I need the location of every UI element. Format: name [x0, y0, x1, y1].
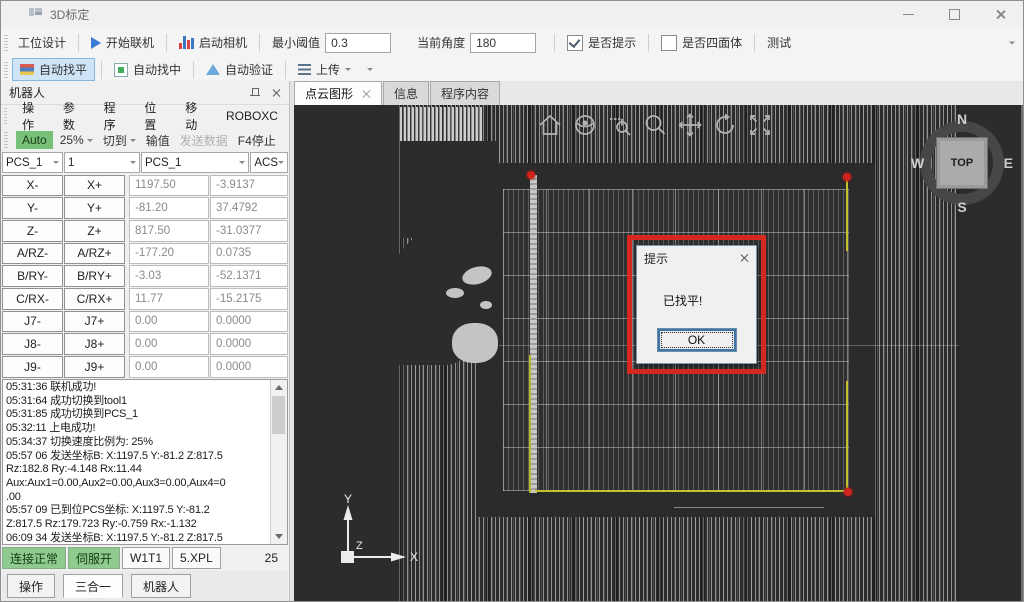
- close-icon: [995, 9, 1006, 20]
- panel-tab[interactable]: 操作: [7, 574, 55, 598]
- jog-plus-button[interactable]: J9+: [64, 356, 125, 378]
- servo-status-badge: 伺服开: [68, 547, 120, 569]
- maximize-button[interactable]: [931, 1, 977, 27]
- jog-minus-button[interactable]: J9-: [2, 356, 63, 378]
- compass-east[interactable]: E: [1004, 155, 1013, 171]
- jog-offset-value: 0.0000: [210, 311, 288, 333]
- jog-position-value: 817.50: [129, 220, 209, 242]
- jog-row: J8- J8+ 0.00 0.0000: [2, 333, 288, 356]
- panel-close-icon[interactable]: [271, 88, 281, 98]
- minimize-button[interactable]: [885, 1, 931, 27]
- jog-plus-button[interactable]: B/RY+: [64, 265, 125, 287]
- log-panel: 05:31:36 联机成功! 05:31:64 成功切换到tool1 05:31…: [2, 379, 288, 545]
- jog-minus-button[interactable]: Z-: [2, 220, 63, 242]
- log-scrollbar[interactable]: [270, 380, 287, 544]
- dropdown-arrow-icon: [130, 161, 136, 164]
- dropdown-arrow-icon: [239, 161, 245, 164]
- jog-position-value: 0.00: [129, 311, 209, 333]
- jog-position-value: -177.20: [129, 243, 209, 265]
- edge-line-yellow: [529, 355, 531, 493]
- tab-program-content[interactable]: 程序内容: [430, 81, 500, 105]
- toolbar-grip: [4, 108, 7, 124]
- send-data-button: 发送数据: [177, 130, 231, 151]
- coordinate-combo[interactable]: 1: [64, 152, 140, 173]
- dialog-message: 已找平!: [663, 292, 702, 309]
- tool-indicator: W1T1: [122, 547, 170, 569]
- point-cloud-viewport[interactable]: N E S W TOP Y X Z: [294, 105, 1023, 601]
- app-window: 3D标定 工位设计 开始联机 启动相机 最小阈值 0.3 当前角度 180: [0, 0, 1024, 602]
- zoom-icon[interactable]: [642, 112, 668, 138]
- jog-row: Y- Y+ -81.20 37.4792: [2, 197, 288, 220]
- current-angle-group: 当前角度 180: [411, 33, 542, 53]
- jog-minus-button[interactable]: A/RZ-: [2, 243, 63, 265]
- current-angle-input[interactable]: 180: [470, 33, 536, 53]
- jog-offset-value: -3.9137: [210, 175, 288, 197]
- corner-marker: [844, 488, 852, 496]
- log-line: Z:817.5 Rz:179.723 Ry:-0.759 Rx:-1.132: [6, 518, 270, 532]
- pan-icon[interactable]: [677, 112, 703, 138]
- checkbox-unchecked-icon: [661, 35, 677, 51]
- jog-table: X- X+ 1197.50 -3.9137 Y- Y+ -81.20 37.47…: [2, 174, 288, 378]
- speed-indicator: 25: [265, 551, 288, 565]
- jog-row: B/RY- B/RY+ -3.03 -52.1371: [2, 265, 288, 288]
- compass-west[interactable]: W: [911, 155, 924, 171]
- play-icon: [91, 37, 101, 49]
- min-threshold-group: 最小阈值 0.3: [266, 33, 397, 53]
- coordinate-selectors: PCS_1 1 PCS_1 ACS: [2, 152, 288, 173]
- main-area: 点云图形 信息 程序内容: [294, 81, 1023, 601]
- edge-line-yellow: [846, 179, 848, 251]
- dialog-close-icon[interactable]: [739, 253, 749, 263]
- menu-item[interactable]: ROBOXC: [215, 109, 289, 123]
- prompt-dialog: 提示 已找平! OK: [636, 245, 757, 364]
- dialog-title: 提示: [644, 250, 739, 267]
- show-prompt-checkbox[interactable]: 是否提示: [561, 34, 642, 51]
- toolbar-overflow-icon[interactable]: [1009, 41, 1015, 44]
- auto-verify-button[interactable]: 自动验证: [200, 61, 279, 78]
- scan-edge-pillar: [530, 175, 537, 493]
- edge-line-yellow: [535, 490, 847, 492]
- toolbar-grip: [4, 62, 8, 78]
- jog-minus-button[interactable]: X-: [2, 175, 63, 197]
- log-line: Aux:Aux1=0.00,Aux2=0.00,Aux3=0.00,Aux4=0: [6, 477, 270, 491]
- log-line: 05:32:11 上电成功!: [6, 422, 270, 436]
- min-threshold-input[interactable]: 0.3: [325, 33, 391, 53]
- toolbar-grip: [4, 35, 8, 51]
- robot-action-bar: Auto 25% 切到 输值 发送数据 F4停止: [1, 128, 289, 152]
- test-button[interactable]: 测试: [761, 34, 797, 51]
- jog-offset-value: 0.0000: [210, 333, 288, 355]
- maximize-icon: [949, 9, 960, 20]
- jog-row: Z- Z+ 817.50 -31.0377: [2, 219, 288, 242]
- jog-position-value: 1197.50: [129, 175, 209, 197]
- dialog-ok-button[interactable]: OK: [657, 328, 737, 352]
- robot-menu: 操作参数程序位置移动ROBOXC: [1, 104, 289, 128]
- coordinate-combo[interactable]: PCS_1: [141, 152, 249, 173]
- panel-tab[interactable]: 三合一: [63, 574, 123, 598]
- rotate-icon[interactable]: [712, 112, 738, 138]
- jog-plus-button[interactable]: A/RZ+: [64, 243, 125, 265]
- jog-row: X- X+ 1197.50 -3.9137: [2, 174, 288, 197]
- jog-row: J7- J7+ 0.00 0.0000: [2, 310, 288, 333]
- log-line: 05:57 06 发送坐标B: X:1197.5 Y:-81.2 Z:817.5: [6, 450, 270, 464]
- orbit-icon[interactable]: [572, 112, 598, 138]
- jog-position-value: -81.20: [129, 197, 209, 219]
- coordinate-combo[interactable]: ACS: [250, 152, 288, 173]
- connection-status-badge: 连接正常: [2, 547, 66, 569]
- tetrahedron-checkbox[interactable]: 是否四面体: [655, 34, 748, 51]
- point-speckle: [452, 323, 498, 363]
- jog-plus-button[interactable]: J7+: [64, 311, 125, 333]
- jog-position-value: -3.03: [129, 265, 209, 287]
- log-line: 05:31:36 联机成功!: [6, 381, 270, 395]
- jog-offset-value: 37.4792: [210, 197, 288, 219]
- flag-level-icon: [20, 64, 34, 75]
- log-line: 05:57 09 已到位PCS坐标: X:1197.5 Y:-81.2: [6, 504, 270, 518]
- jog-plus-button[interactable]: C/RX+: [64, 288, 125, 310]
- min-threshold-label: 最小阈值: [272, 34, 320, 51]
- jog-plus-button[interactable]: Y+: [64, 197, 125, 219]
- point-speckle: [446, 288, 464, 298]
- close-button[interactable]: [977, 1, 1023, 27]
- point-speckle: [480, 301, 492, 309]
- file-indicator: 5.XPL: [172, 547, 221, 569]
- robot-panel: 机器人 操作参数程序位置移动ROBOXC Auto 25% 切到 输值 发送数据…: [1, 81, 290, 601]
- log-line: 05:31:85 成功切换到PCS_1: [6, 408, 270, 422]
- dropdown-arrow-icon: [87, 139, 93, 142]
- jog-offset-value: -15.2175: [210, 288, 288, 310]
- dialog-title-bar: 提示: [637, 246, 756, 270]
- main-toolbar: 工位设计 开始联机 启动相机 最小阈值 0.3 当前角度 180 是否提示 是否…: [1, 27, 1023, 59]
- jog-minus-button[interactable]: Y-: [2, 197, 63, 219]
- auto-toolbar: 自动找平 自动找中 自动验证 上传: [1, 58, 1023, 81]
- bar-chart-icon: [179, 36, 194, 49]
- grid-extension-line: [674, 507, 824, 508]
- viewport-toolbar: [537, 112, 773, 138]
- axis-z-label: Z: [356, 540, 363, 552]
- jog-minus-button[interactable]: B/RY-: [2, 265, 63, 287]
- dropdown-arrow-icon: [278, 161, 284, 164]
- tab-point-cloud[interactable]: 点云图形: [294, 81, 382, 105]
- app-icon: [29, 8, 43, 20]
- list-upload-icon: [298, 64, 311, 75]
- compass-top-face[interactable]: TOP: [936, 137, 988, 189]
- jog-position-value: 0.00: [129, 356, 209, 378]
- jog-offset-value: -52.1371: [210, 265, 288, 287]
- axes-triad-icon: Y X Z: [326, 493, 418, 582]
- checkbox-checked-icon: [567, 35, 583, 51]
- robot-status-bar: 连接正常 伺服开 W1T1 5.XPL 25: [2, 545, 288, 571]
- panel-bottom-tabs: 操作 三合一 机器人: [2, 571, 288, 601]
- viewport-edge: [1021, 105, 1023, 601]
- toolbar-grip: [4, 132, 8, 148]
- view-compass[interactable]: N E S W TOP: [912, 113, 1012, 213]
- zoom-extents-icon[interactable]: [747, 112, 773, 138]
- document-tab-bar: 点云图形 信息 程序内容: [294, 81, 1023, 105]
- tab-info[interactable]: 信息: [383, 81, 429, 105]
- coordinate-combo[interactable]: PCS_1: [2, 152, 63, 173]
- corner-marker: [843, 173, 851, 181]
- scroll-down-icon[interactable]: [271, 529, 287, 544]
- tab-close-icon[interactable]: [361, 89, 371, 99]
- jog-minus-button[interactable]: J7-: [2, 311, 63, 333]
- upload-button[interactable]: 上传: [292, 61, 357, 78]
- shadow-blob: [400, 141, 497, 238]
- zoom-window-icon[interactable]: [607, 112, 633, 138]
- auto-mode-button[interactable]: Auto: [16, 131, 53, 149]
- corner-marker: [527, 171, 535, 179]
- axis-y-label: Y: [344, 493, 352, 506]
- jog-position-value: 11.77: [129, 288, 209, 310]
- scrollbar-thumb[interactable]: [272, 396, 285, 434]
- title-bar: 3D标定: [1, 1, 1023, 27]
- input-value-button[interactable]: 输值: [143, 130, 173, 151]
- jog-minus-button[interactable]: J8-: [2, 333, 63, 355]
- jog-position-value: 0.00: [129, 333, 209, 355]
- log-line: .00: [6, 491, 270, 505]
- jog-offset-value: 0.0735: [210, 243, 288, 265]
- toolbar-overflow-icon[interactable]: [367, 68, 373, 71]
- speed-dropdown[interactable]: 25%: [57, 131, 96, 149]
- window-title: 3D标定: [50, 6, 89, 23]
- switch-to-dropdown[interactable]: 切到: [100, 130, 139, 151]
- start-online-button[interactable]: 开始联机: [85, 34, 160, 51]
- edge-line-yellow: [846, 381, 848, 492]
- home-icon[interactable]: [537, 112, 563, 138]
- log-line: 06:09 34 发送坐标B: X:1197.5 Y:-81.2 Z:817.5: [6, 532, 270, 544]
- current-angle-label: 当前角度: [417, 34, 465, 51]
- dropdown-arrow-icon: [53, 161, 59, 164]
- compass-south[interactable]: S: [957, 199, 966, 215]
- f4-stop-button[interactable]: F4停止: [235, 130, 279, 151]
- log-line: 05:31:64 成功切换到tool1: [6, 395, 270, 409]
- axis-x-label: X: [410, 550, 418, 564]
- dropdown-arrow-icon: [345, 68, 351, 71]
- jog-row: J9- J9+ 0.00 0.0000: [2, 355, 288, 378]
- jog-plus-button[interactable]: Z+: [64, 220, 125, 242]
- triangle-verify-icon: [206, 64, 220, 75]
- jog-offset-value: 0.0000: [210, 356, 288, 378]
- dropdown-arrow-icon: [130, 139, 136, 142]
- start-camera-button[interactable]: 启动相机: [173, 34, 253, 51]
- jog-plus-button[interactable]: J8+: [64, 333, 125, 355]
- jog-plus-button[interactable]: X+: [64, 175, 125, 197]
- log-line: Rz:182.8 Ry:-4.148 Rx:11.44: [6, 463, 270, 477]
- station-design-button[interactable]: 工位设计: [12, 34, 72, 51]
- log-line: 05:34:37 切换速度比例为: 25%: [6, 436, 270, 450]
- compass-north[interactable]: N: [957, 111, 967, 127]
- scroll-up-icon[interactable]: [271, 380, 287, 395]
- minimize-icon: [903, 14, 914, 15]
- jog-minus-button[interactable]: C/RX-: [2, 288, 63, 310]
- jog-row: A/RZ- A/RZ+ -177.20 0.0735: [2, 242, 288, 265]
- auto-center-button[interactable]: 自动找中: [108, 61, 187, 78]
- jog-row: C/RX- C/RX+ 11.77 -15.2175: [2, 287, 288, 310]
- jog-offset-value: -31.0377: [210, 220, 288, 242]
- pin-icon[interactable]: [249, 87, 261, 99]
- log-output[interactable]: 05:31:36 联机成功! 05:31:64 成功切换到tool1 05:31…: [3, 380, 270, 544]
- auto-level-button[interactable]: 自动找平: [12, 58, 95, 81]
- square-center-icon: [114, 63, 128, 77]
- panel-tab[interactable]: 机器人: [131, 574, 191, 598]
